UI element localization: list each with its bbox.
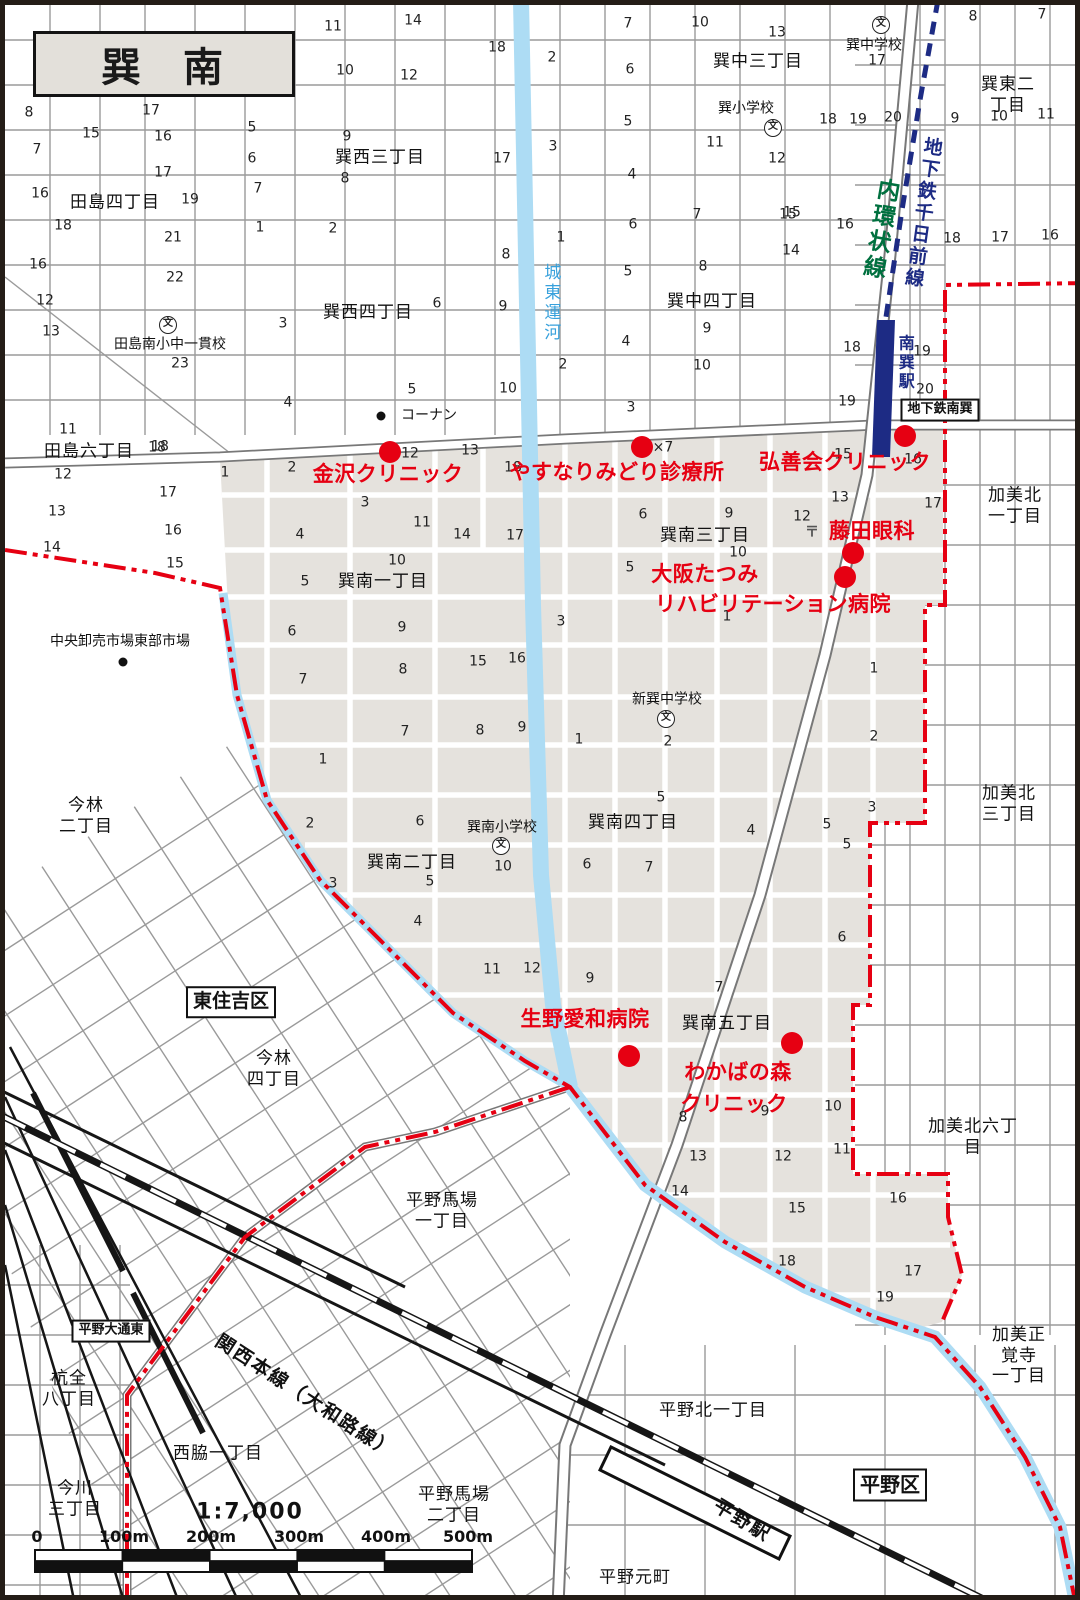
lot-number: 10: [494, 858, 512, 875]
school-label: 巽中学校: [846, 37, 902, 54]
lot-number: 18: [504, 459, 522, 476]
lot-number: 11: [833, 1141, 851, 1158]
lot-number: ×7: [653, 439, 674, 456]
poi-dot: [377, 412, 386, 421]
lot-number: 1: [557, 229, 566, 246]
lot-number: 10: [693, 357, 711, 374]
lot-number: 1: [319, 751, 328, 768]
lot-number: 16: [904, 451, 922, 468]
lot-number: 17: [506, 527, 524, 544]
lot-number: 3: [361, 494, 370, 511]
district-label: 巽南三丁目: [660, 526, 750, 547]
facility-label: 大阪たつみ: [651, 562, 759, 588]
vertical-label: 城東運河: [540, 263, 561, 343]
lot-number: 6: [248, 150, 257, 167]
vertical-label: 南巽駅: [895, 335, 915, 392]
lot-number: 10: [824, 1098, 842, 1115]
district-label: 巽南二丁目: [367, 853, 457, 874]
lot-number: 12: [793, 508, 811, 525]
lot-number: 9: [703, 320, 712, 337]
lot-number: 8: [699, 258, 708, 275]
lot-number: 17: [142, 102, 160, 119]
lot-number: 16: [1041, 227, 1059, 244]
facility-label: 弘善会クリニック: [759, 450, 931, 476]
district-label: 巽東二丁目: [975, 74, 1042, 115]
poi-label: 中央卸売市場東部市場: [50, 633, 190, 650]
lot-number: 11: [1037, 106, 1055, 123]
scale-tick: 300m: [274, 1527, 324, 1547]
lot-number: 9: [499, 298, 508, 315]
lot-number: 4: [284, 394, 293, 411]
lot-number: 13: [461, 442, 479, 459]
lot-number: 15: [469, 653, 487, 670]
district-label: 加美北 三丁目: [982, 783, 1036, 824]
facility-label: リハビリテーション病院: [655, 592, 891, 618]
lot-number: 4: [628, 166, 637, 183]
lot-number: 6: [288, 623, 297, 640]
lot-number: 16: [164, 522, 182, 539]
lot-number: 15: [783, 204, 801, 221]
lot-number: 13: [831, 489, 849, 506]
district-label: 加美北 一丁目: [988, 485, 1042, 526]
railway-label: 関西本線（大和路線）: [211, 1330, 400, 1464]
lot-number: 16: [154, 128, 172, 145]
lot-number: 9: [725, 505, 734, 522]
facility-label: 金沢クリニック: [313, 462, 464, 488]
lot-number: 6: [639, 506, 648, 523]
district-label: 田島四丁目: [70, 193, 160, 214]
lot-number: 3: [557, 613, 566, 630]
lot-number: 19: [181, 191, 199, 208]
lot-number: 18: [778, 1253, 796, 1270]
lot-number: 11: [59, 421, 77, 438]
poi-dot: [119, 658, 128, 667]
district-label: 巽西四丁目: [323, 303, 413, 324]
lot-number: 12: [36, 292, 54, 309]
lot-number: 7: [624, 15, 633, 32]
lot-number: 21: [164, 229, 182, 246]
facility-label: 藤田眼科: [829, 519, 915, 545]
facility-dot: [834, 566, 856, 588]
lot-number: 13: [768, 24, 786, 41]
school-label: 田島南小中一貫校: [114, 336, 226, 353]
lot-number: 15: [788, 1200, 806, 1217]
lot-number: 8: [969, 8, 978, 25]
lot-number: 16: [836, 216, 854, 233]
district-label: 加美正覚寺 一丁目: [991, 1325, 1047, 1387]
district-label: 加美北六丁目: [922, 1116, 1024, 1157]
post-office-icon: 〒: [805, 524, 819, 541]
lot-number: 3: [549, 138, 558, 155]
lot-number: 7: [33, 141, 42, 158]
lot-number: 3: [627, 399, 636, 416]
lot-number: 10: [990, 108, 1008, 125]
lot-number: 1: [256, 219, 265, 236]
lot-number: 14: [43, 539, 61, 556]
lot-number: 18: [488, 39, 506, 56]
facility-dot: [379, 441, 401, 463]
lot-number: 11: [483, 961, 501, 978]
lot-number: 1: [723, 608, 732, 625]
district-label: 今川 三丁目: [48, 1478, 102, 1519]
map-stage: 1110141281715167956817716191812211612132…: [0, 0, 1080, 1600]
lot-number: 10: [729, 544, 747, 561]
lot-number: 12: [400, 67, 418, 84]
lot-number: 15: [166, 555, 184, 572]
scale-tick: 400m: [361, 1527, 411, 1547]
lot-number: 22: [166, 269, 184, 286]
lot-number: 8: [476, 722, 485, 739]
lot-number: 1: [221, 464, 230, 481]
lot-number: 14: [671, 1183, 689, 1200]
map-labels-layer: 1110141281715167956817716191812211612132…: [5, 5, 1075, 1595]
lot-number: 16: [31, 185, 49, 202]
scale-tick: 500m: [443, 1527, 493, 1547]
lot-number: 19: [913, 343, 931, 360]
district-label: 巽中三丁目: [713, 52, 803, 73]
lot-number: 2: [288, 459, 297, 476]
lot-number: 9: [586, 970, 595, 987]
lot-number: 12: [768, 150, 786, 167]
lot-number: 5: [624, 113, 633, 130]
lot-number: 14: [782, 242, 800, 259]
lot-number: 4: [296, 526, 305, 543]
lot-number: 16: [29, 256, 47, 273]
lot-number: 5: [657, 789, 666, 806]
district-label: 平野馬場 一丁目: [406, 1190, 478, 1231]
lot-number: 11: [706, 134, 724, 151]
lot-number: 17: [924, 495, 942, 512]
lot-number: 5: [823, 816, 832, 833]
district-label: 巽南五丁目: [682, 1014, 772, 1035]
lot-number: 19: [838, 393, 856, 410]
lot-number: 11: [413, 514, 431, 531]
lot-number: 13: [689, 1148, 707, 1165]
lot-number: 18: [819, 111, 837, 128]
district-label: 巽南四丁目: [588, 813, 678, 834]
lot-number: 19: [876, 1289, 894, 1306]
lot-number: 9: [518, 719, 527, 736]
lot-number: 7: [401, 723, 410, 740]
lot-number: 5: [626, 559, 635, 576]
lot-number: 2: [559, 356, 568, 373]
lot-number: 5: [248, 119, 257, 136]
lot-number: 10: [691, 14, 709, 31]
lot-number: 5: [624, 263, 633, 280]
lot-number: 12: [523, 960, 541, 977]
lot-number: 18: [148, 439, 166, 456]
district-label: 巽南一丁目: [338, 572, 428, 593]
boxed-label: 地下鉄南巽: [900, 399, 979, 422]
lot-number: 2: [548, 49, 557, 66]
lot-number: 18: [54, 217, 72, 234]
district-label: 杭全 八丁目: [42, 1368, 96, 1409]
school-label: 巽小学校: [718, 100, 774, 117]
lot-number: 2: [664, 733, 673, 750]
lot-number: 20: [884, 109, 902, 126]
school-icon: 文: [764, 119, 782, 137]
poi-label: コーナン: [401, 407, 457, 424]
boxed-label: 平野区: [853, 1469, 927, 1502]
district-label: 田島六丁目: [44, 442, 134, 463]
lot-number: 4: [414, 913, 423, 930]
scale-tick: 0: [31, 1527, 42, 1547]
district-label: 西脇一丁目: [173, 1444, 263, 1465]
lot-number: 23: [171, 355, 189, 372]
facility-label: クリニック: [680, 1092, 788, 1118]
lot-number: 6: [629, 216, 638, 233]
lot-number: 15: [82, 125, 100, 142]
lot-number: 11: [324, 18, 342, 35]
lot-number: 3: [329, 875, 338, 892]
lot-number: 17: [154, 164, 172, 181]
lot-number: 6: [838, 929, 847, 946]
scale-tick: 100m: [99, 1527, 149, 1547]
lot-number: 8: [25, 104, 34, 121]
scale-ratio: 1:7,000: [196, 1500, 304, 1525]
lot-number: 9: [951, 110, 960, 127]
lot-number: 7: [254, 180, 263, 197]
facility-dot: [894, 425, 916, 447]
facility-dot: [631, 436, 653, 458]
district-label: 巽中四丁目: [667, 292, 757, 313]
lot-number: 8: [341, 170, 350, 187]
lot-number: 17: [904, 1263, 922, 1280]
lot-number: 5: [408, 381, 417, 398]
school-icon: 文: [159, 316, 177, 334]
lot-number: 18: [151, 438, 169, 455]
lot-number: 7: [299, 671, 308, 688]
facility-label: 生野愛和病院: [521, 1007, 650, 1033]
lot-number: 17: [493, 150, 511, 167]
lot-number: 17: [868, 52, 886, 69]
map-title: 巽 南: [101, 35, 237, 93]
lot-number: 10: [388, 552, 406, 569]
lot-number: 2: [870, 728, 879, 745]
lot-number: 6: [416, 813, 425, 830]
lot-number: 4: [622, 333, 631, 350]
lot-number: 5: [301, 573, 310, 590]
lot-number: 8: [399, 661, 408, 678]
lot-number: 16: [508, 650, 526, 667]
lot-number: 15: [779, 206, 797, 223]
lot-number: 8: [679, 1109, 688, 1126]
facility-dot: [781, 1032, 803, 1054]
vertical-label: 内環状線: [856, 175, 902, 282]
lot-number: 4: [747, 822, 756, 839]
school-icon: 文: [657, 710, 675, 728]
lot-number: 18: [943, 230, 961, 247]
lot-number: 17: [991, 229, 1009, 246]
facility-label: やすなりみどり診療所: [510, 460, 725, 486]
lot-number: 9: [398, 619, 407, 636]
scale-tick: 200m: [186, 1527, 236, 1547]
lot-number: 9: [343, 128, 352, 145]
district-label: 今林 四丁目: [247, 1048, 301, 1089]
lot-number: 14: [404, 12, 422, 29]
lot-number: 12: [401, 445, 419, 462]
lot-number: 1: [870, 660, 879, 677]
district-label: 平野元町: [599, 1568, 671, 1589]
vertical-label: 地下鉄千日前線: [900, 135, 944, 291]
lot-number: 1: [575, 731, 584, 748]
lot-number: 13: [42, 323, 60, 340]
lot-number: 2: [306, 815, 315, 832]
lot-number: 3: [868, 799, 877, 816]
district-label: 巽西三丁目: [335, 148, 425, 169]
boxed-label: 平野大通東: [71, 1320, 150, 1343]
facility-dot: [842, 542, 864, 564]
facility-label: わかばの森: [684, 1060, 792, 1086]
district-label: 今林 二丁目: [59, 795, 113, 836]
lot-number: 13: [48, 503, 66, 520]
lot-number: 8: [502, 246, 511, 263]
lot-number: 16: [889, 1190, 907, 1207]
lot-number: 15: [834, 446, 852, 463]
lot-number: 5: [843, 836, 852, 853]
lot-number: 10: [499, 380, 517, 397]
lot-number: 7: [693, 206, 702, 223]
lot-number: 20: [916, 381, 934, 398]
lot-number: 2: [329, 220, 338, 237]
district-label: 平野馬場 二丁目: [418, 1484, 490, 1525]
lot-number: 17: [159, 484, 177, 501]
lot-number: 6: [626, 61, 635, 78]
lot-number: 12: [54, 466, 72, 483]
district-label: 平野北一丁目: [659, 1401, 767, 1422]
railway-label: 平野駅: [709, 1495, 775, 1547]
lot-number: 7: [645, 859, 654, 876]
lot-number: 6: [583, 856, 592, 873]
boxed-label: 東住吉区: [186, 986, 276, 1018]
lot-number: 18: [843, 339, 861, 356]
lot-number: 12: [774, 1148, 792, 1165]
lot-number: 10: [336, 62, 354, 79]
lot-number: 9: [761, 1103, 770, 1120]
lot-number: 7: [1038, 6, 1047, 23]
school-icon: 文: [872, 16, 890, 34]
facility-dot: [618, 1045, 640, 1067]
lot-number: 5: [426, 873, 435, 890]
school-label: 新巽中学校: [632, 691, 702, 708]
lot-number: 6: [433, 295, 442, 312]
lot-number: 3: [279, 315, 288, 332]
lot-number: 14: [453, 526, 471, 543]
school-icon: 文: [492, 837, 510, 855]
map-title-box: 巽 南: [33, 31, 295, 97]
lot-number: 19: [849, 111, 867, 128]
school-label: 巽南小学校: [467, 819, 537, 836]
lot-number: 7: [715, 979, 724, 996]
